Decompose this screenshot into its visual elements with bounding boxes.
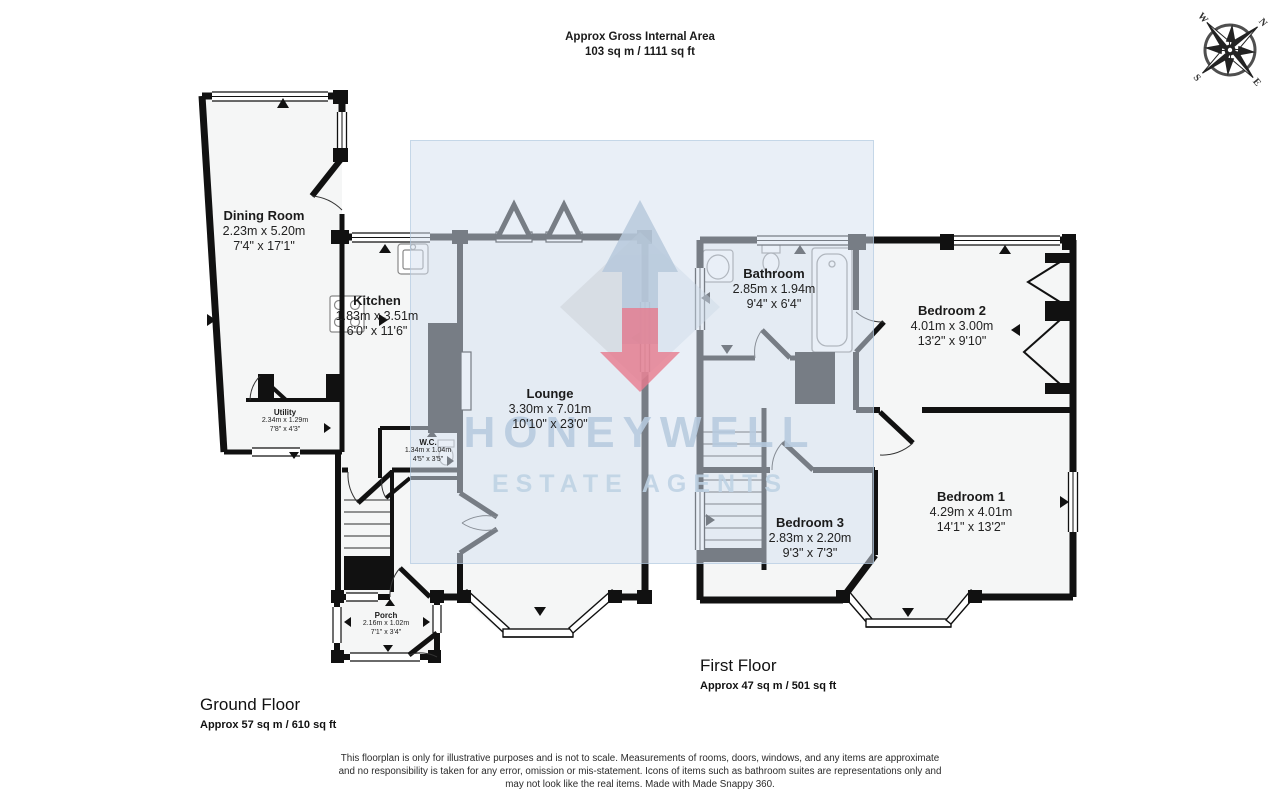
compass-e: E	[1250, 76, 1263, 88]
floorplan-drawing	[0, 0, 1280, 806]
kitchen-sink-icon	[398, 244, 428, 274]
compass-s: S	[1191, 72, 1203, 84]
toilet-icon-first	[762, 245, 780, 273]
compass-icon: N E S W	[1184, 4, 1276, 96]
bathtub-icon	[812, 248, 852, 352]
floorplan-page: HONEYWELL ESTATE AGENTS N E S W	[0, 0, 1280, 806]
hob-icon	[330, 296, 364, 332]
first-chimney	[795, 352, 835, 404]
compass-n: N	[1256, 16, 1270, 29]
basin-icon	[703, 250, 733, 282]
